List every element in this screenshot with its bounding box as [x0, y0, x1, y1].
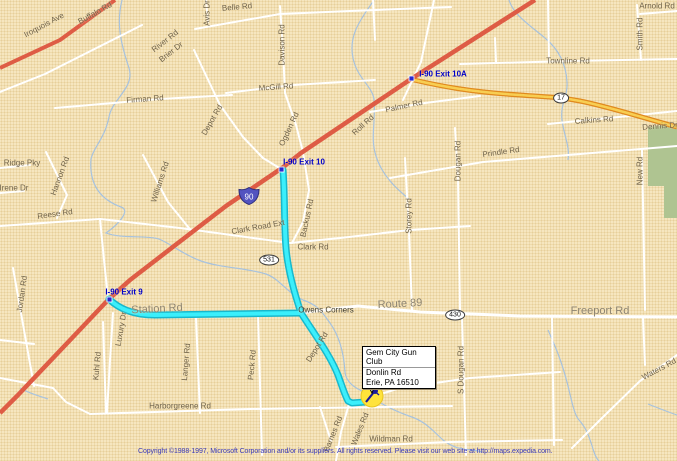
route-17-shield: 17 [553, 93, 569, 104]
interstate-90-shield: 90 [238, 187, 260, 206]
callout-address-line1: Donlin Rd [363, 368, 435, 378]
destination-callout[interactable]: Gem City Gun Club Donlin Rd Erie, PA 165… [362, 346, 436, 389]
svg-text:90: 90 [245, 193, 254, 202]
copyright-text: Copyright ©1988-1997, Microsoft Corporat… [138, 448, 552, 455]
route-17-road [414, 80, 677, 127]
callout-address-line2: Erie, PA 16510 [363, 378, 435, 388]
route-430-shield: 430 [445, 310, 465, 321]
route-531-shield: 531 [259, 255, 279, 266]
map-graphics [0, 0, 677, 461]
local-roads-layer [0, 0, 677, 461]
streams-layer [20, 0, 677, 461]
park-area [648, 124, 677, 218]
callout-title: Gem City Gun Club [363, 347, 435, 368]
map-canvas[interactable]: Buffalo RdIroquois AveAvis DrBelle RdRiv… [0, 0, 677, 461]
interstate-90-highway [0, 0, 535, 413]
